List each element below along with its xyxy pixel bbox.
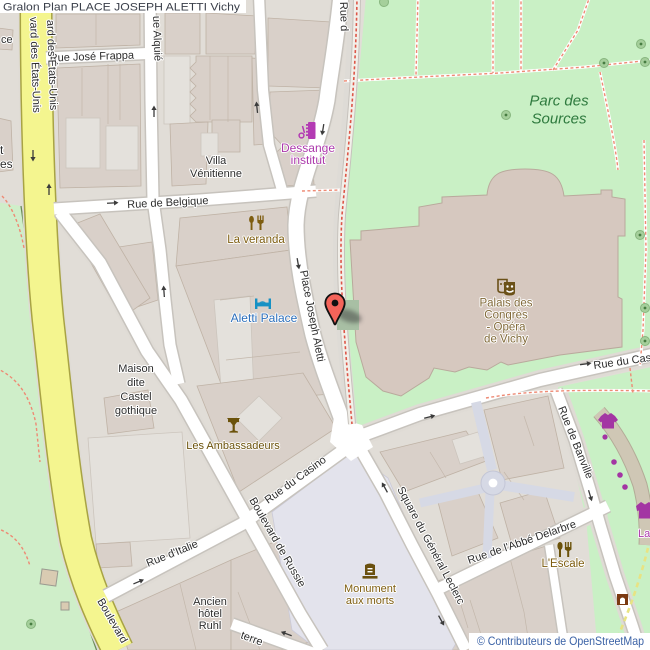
svg-text:Congrès: Congrès (484, 310, 528, 322)
svg-text:Maison: Maison (118, 363, 153, 375)
svg-text:Palais des: Palais des (479, 298, 532, 310)
svg-text:aux morts: aux morts (346, 595, 395, 607)
svg-text:ce: ce (1, 34, 13, 46)
svg-text:Aletti Palace: Aletti Palace (231, 311, 298, 325)
svg-text:Vénitienne: Vénitienne (190, 168, 242, 180)
svg-text:L'Escale: L'Escale (541, 558, 584, 570)
svg-text:de Vichy: de Vichy (484, 334, 528, 346)
svg-text:Rue d: Rue d (337, 2, 350, 32)
svg-text:Les Ambassadeurs: Les Ambassadeurs (186, 440, 280, 452)
svg-text:Castel: Castel (120, 391, 151, 403)
svg-text:dite: dite (127, 377, 145, 389)
svg-text:Parc des: Parc des (529, 93, 589, 110)
svg-text:Gralon Plan PLACE JOSEPH ALET: Gralon Plan PLACE JOSEPH ALETTI Vichy (3, 2, 241, 14)
svg-text:Monument: Monument (344, 583, 396, 595)
svg-text:es: es (0, 157, 13, 171)
svg-text:ue Alquié: ue Alquié (150, 16, 164, 62)
svg-text:institut: institut (291, 153, 326, 167)
svg-text:Sources: Sources (531, 111, 587, 128)
svg-text:Ruhl: Ruhl (199, 620, 222, 632)
svg-text:hôtel: hôtel (198, 608, 222, 620)
svg-text:gothique: gothique (115, 405, 157, 417)
svg-text:La veranda: La veranda (227, 234, 285, 246)
svg-text:Villa: Villa (206, 155, 227, 167)
svg-text:La: La (638, 528, 650, 540)
svg-text:Ancien: Ancien (193, 596, 227, 608)
svg-text:© Contributeurs de OpenStreetM: © Contributeurs de OpenStreetMap (477, 634, 644, 648)
svg-text:- Opéra: - Opéra (487, 322, 527, 334)
